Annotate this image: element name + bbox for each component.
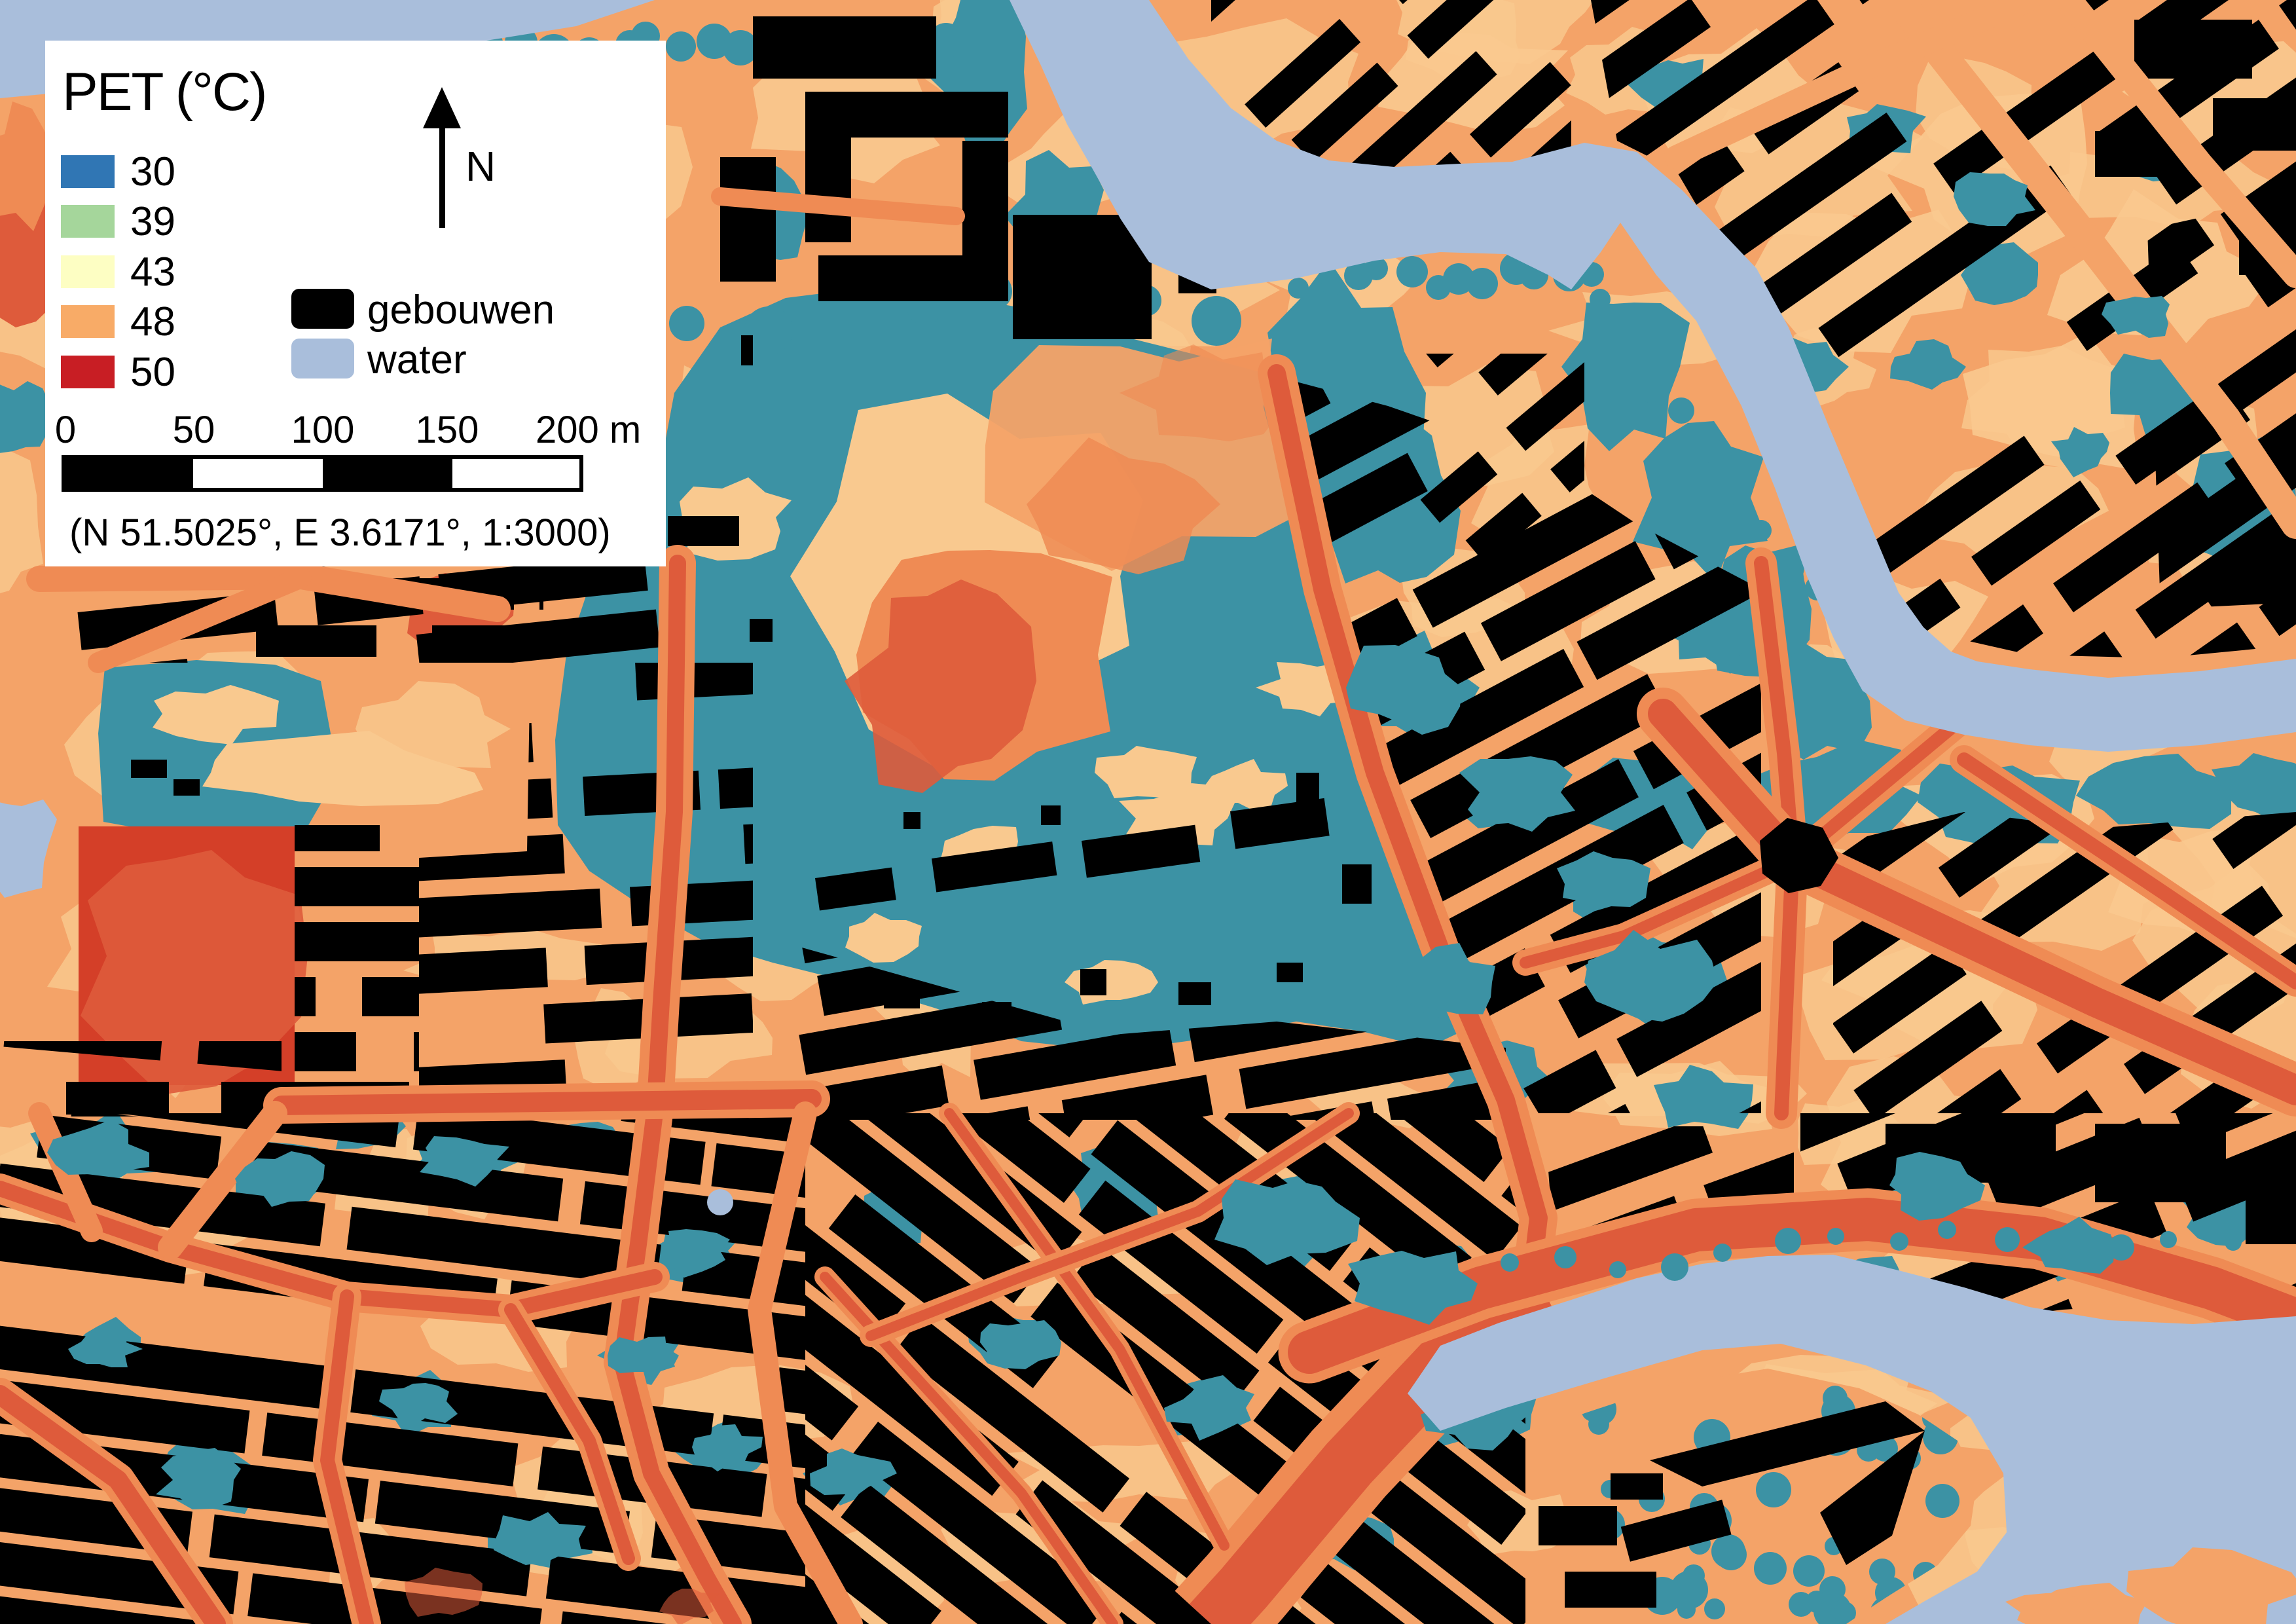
svg-text:48: 48: [130, 299, 175, 344]
svg-text:100: 100: [291, 409, 355, 451]
svg-text:43: 43: [130, 249, 175, 295]
svg-text:0: 0: [55, 409, 76, 451]
svg-text:30: 30: [130, 149, 175, 194]
svg-text:PET (°C): PET (°C): [62, 62, 266, 122]
svg-text:N: N: [465, 143, 496, 190]
svg-text:(N 51.5025°, E 3.6171°, 1:3000: (N 51.5025°, E 3.6171°, 1:3000): [69, 511, 611, 554]
svg-text:50: 50: [130, 350, 175, 395]
svg-text:50: 50: [173, 409, 215, 451]
svg-text:200 m: 200 m: [536, 409, 641, 451]
svg-text:39: 39: [130, 199, 175, 244]
svg-text:150: 150: [416, 409, 479, 451]
svg-text:gebouwen: gebouwen: [367, 287, 555, 333]
svg-text:water: water: [367, 337, 467, 382]
